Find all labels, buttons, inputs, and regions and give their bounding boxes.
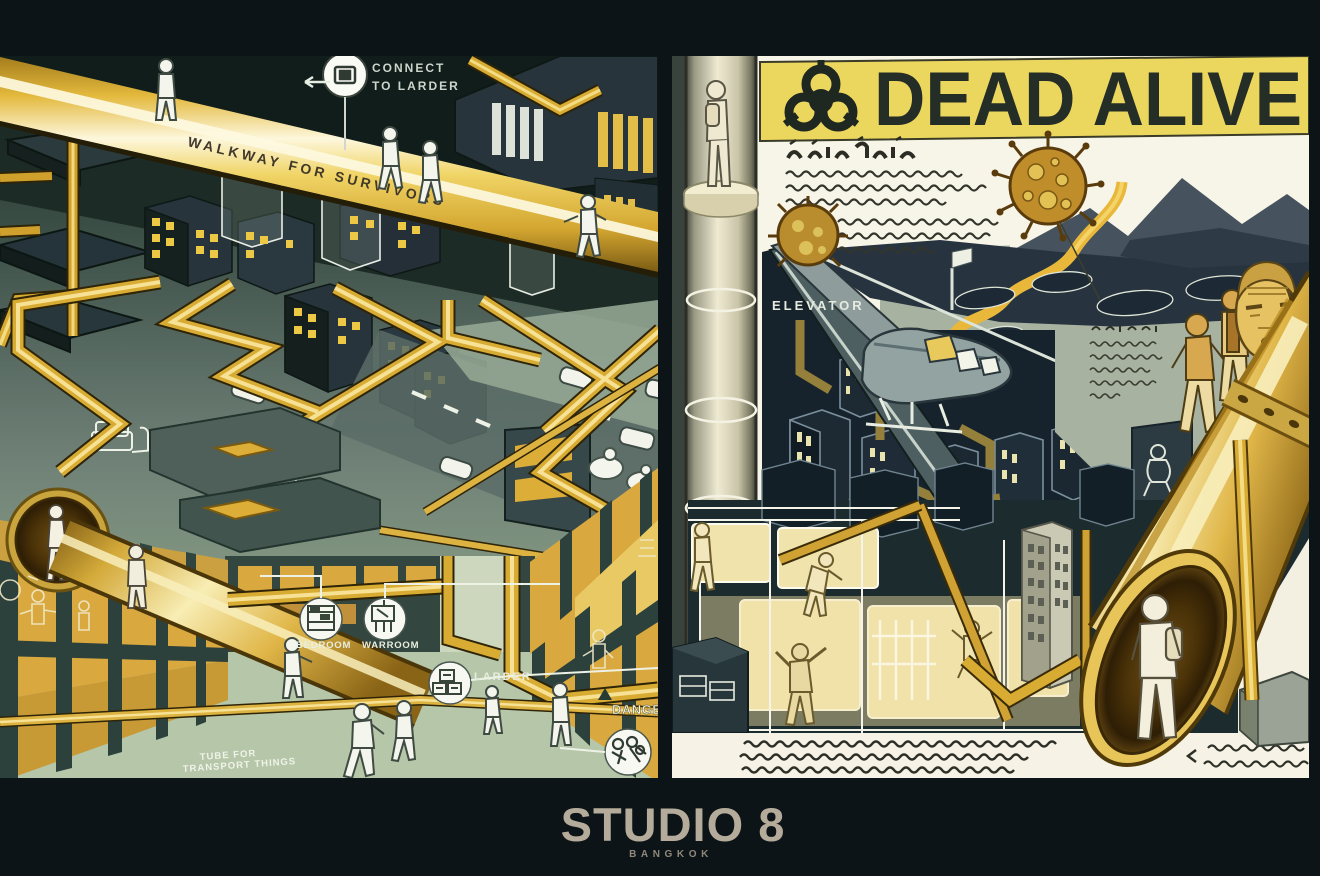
svg-text:BEDROOM: BEDROOM: [296, 640, 351, 651]
svg-text:STUDIO 8: STUDIO 8: [561, 798, 786, 851]
svg-text:CONNECT: CONNECT: [372, 61, 445, 75]
svg-text:LARDER: LARDER: [474, 671, 532, 683]
svg-text:BANGKOK: BANGKOK: [629, 849, 713, 860]
svg-text:WARROOM: WARROOM: [362, 640, 419, 651]
svg-text:ELEVATOR: ELEVATOR: [772, 298, 865, 313]
svg-text:DEAD ALIVE: DEAD ALIVE: [874, 57, 1302, 142]
svg-text:TO LARDER: TO LARDER: [372, 79, 460, 93]
